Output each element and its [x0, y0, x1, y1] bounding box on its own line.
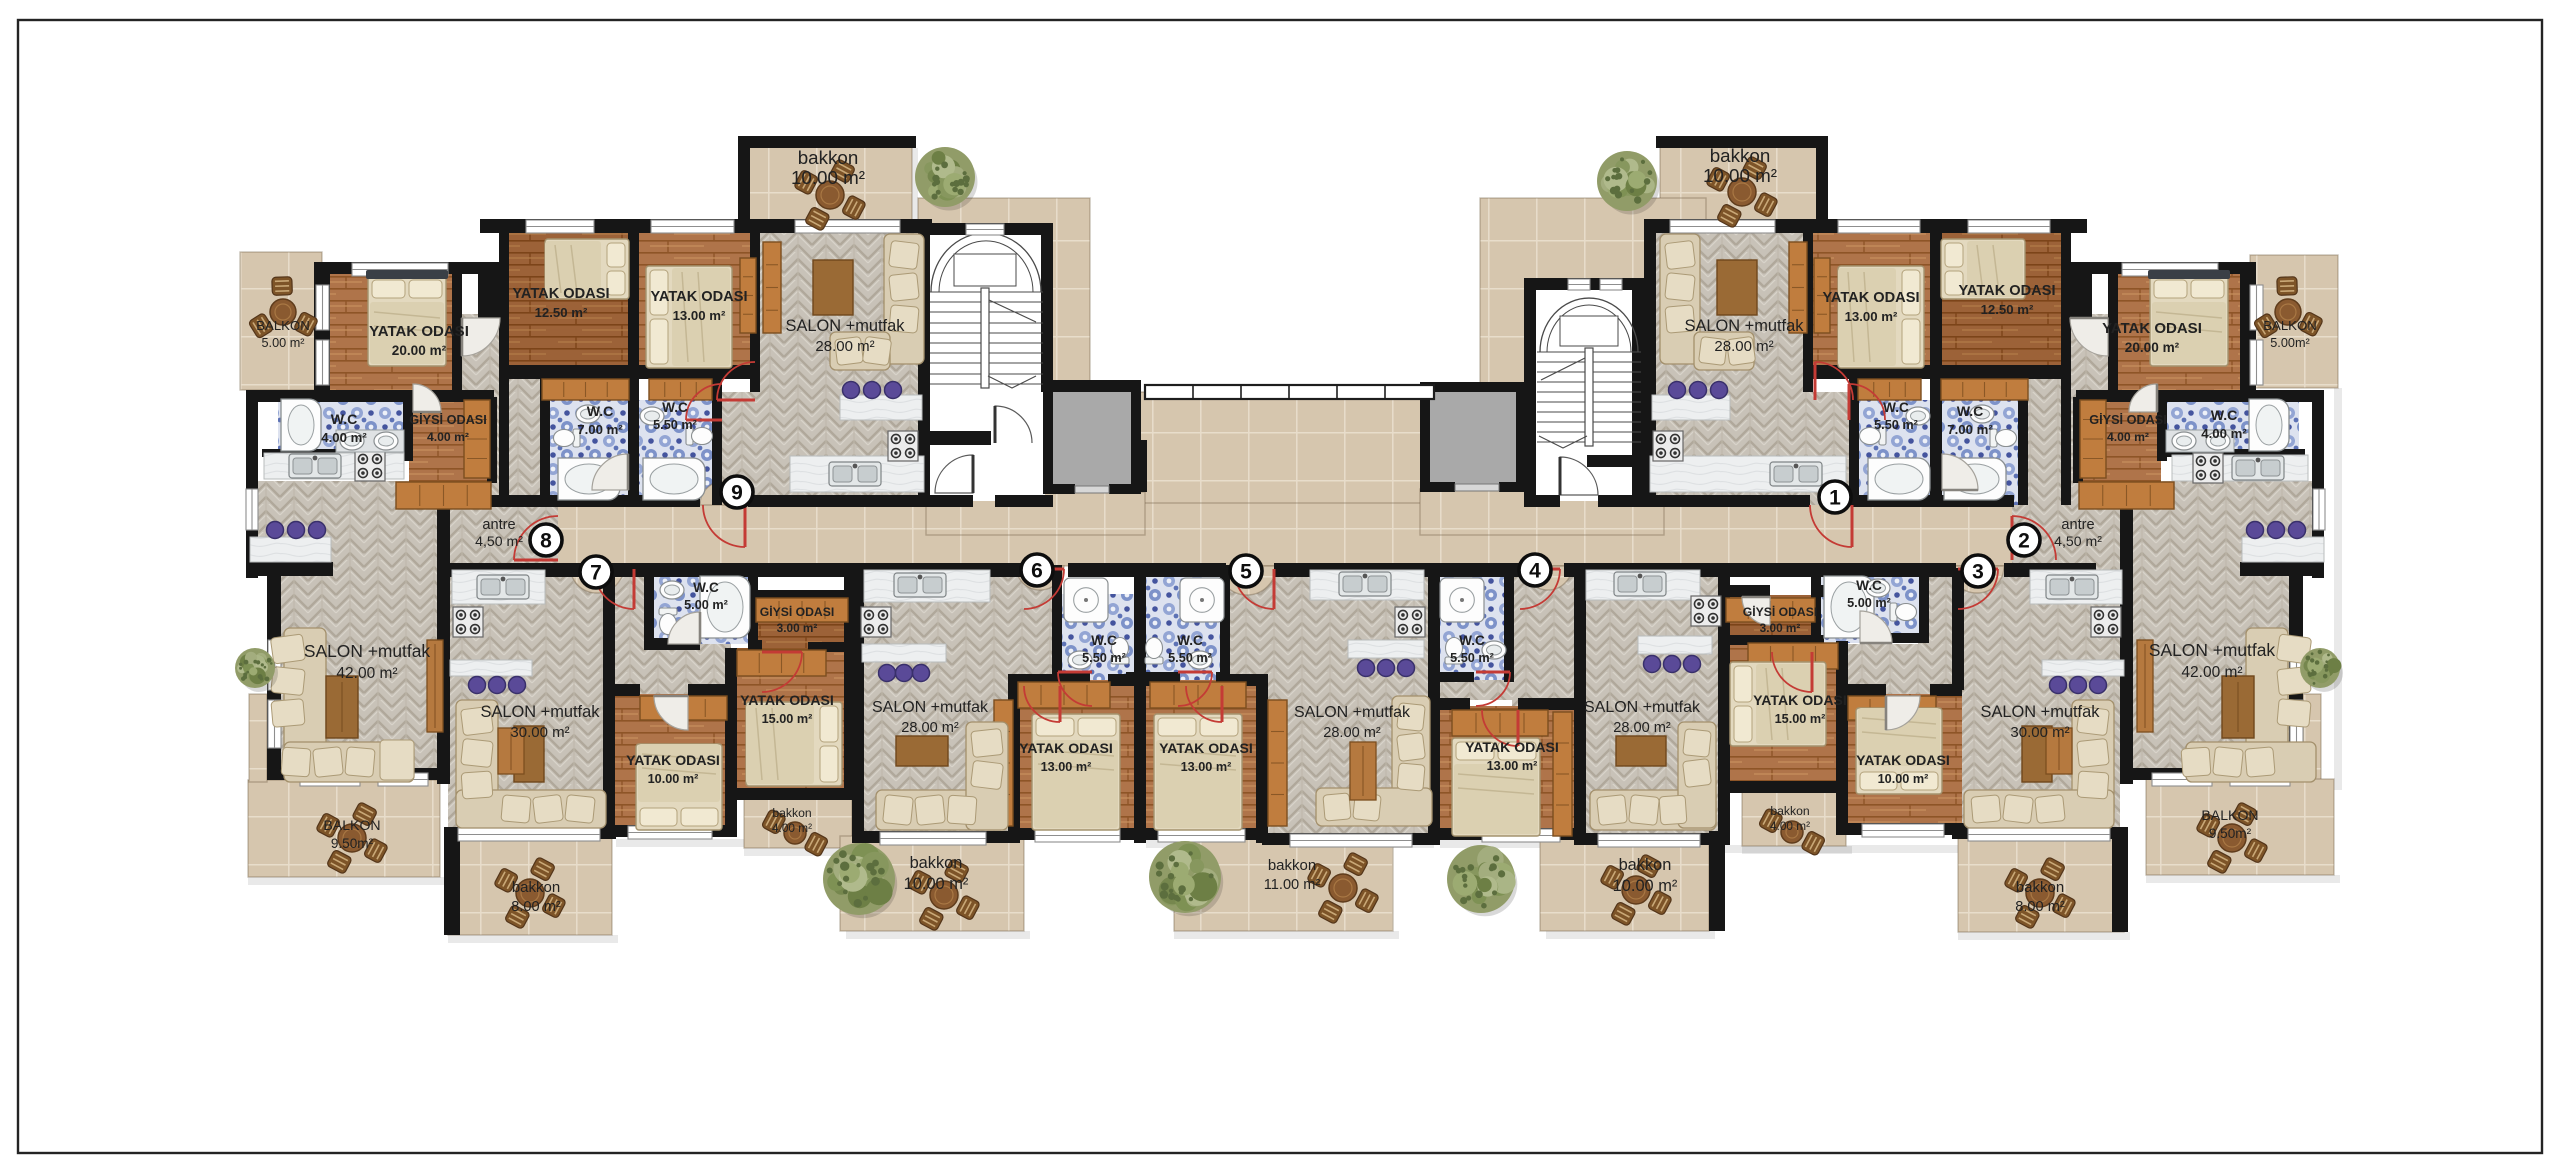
svg-text:bakkon: bakkon: [1619, 856, 1672, 874]
svg-text:4.00 m²: 4.00 m²: [321, 430, 367, 445]
svg-text:13.00 m²: 13.00 m²: [1845, 309, 1898, 324]
svg-text:9: 9: [731, 482, 743, 505]
svg-text:4.00 m²: 4.00 m²: [427, 430, 469, 444]
svg-text:YATAK ODASI: YATAK ODASI: [1465, 739, 1559, 755]
svg-text:W.C: W.C: [587, 403, 614, 419]
svg-text:5.00 m²: 5.00 m²: [684, 598, 728, 612]
svg-text:4.00 m²: 4.00 m²: [772, 821, 812, 835]
svg-text:SALON +mutfak: SALON +mutfak: [1584, 699, 1701, 716]
svg-text:bakkon: bakkon: [1268, 857, 1316, 874]
svg-text:YATAK ODASI: YATAK ODASI: [2102, 320, 2202, 337]
svg-text:30.00 m²: 30.00 m²: [2010, 724, 2069, 741]
svg-text:13.00 m²: 13.00 m²: [1487, 759, 1538, 773]
svg-text:GİYSİ ODASI: GİYSİ ODASI: [409, 412, 487, 427]
svg-text:15.00 m²: 15.00 m²: [1775, 712, 1826, 726]
svg-text:7: 7: [590, 562, 602, 585]
svg-text:YATAK ODASI: YATAK ODASI: [1822, 290, 1919, 306]
svg-text:5.50 m²: 5.50 m²: [653, 418, 697, 432]
svg-text:20.00 m²: 20.00 m²: [2125, 340, 2180, 355]
svg-text:8: 8: [540, 530, 552, 553]
svg-text:GİYSİ ODASI: GİYSİ ODASI: [760, 604, 835, 619]
svg-text:5.50 m²: 5.50 m²: [1082, 651, 1126, 665]
svg-text:3.00 m²: 3.00 m²: [777, 621, 818, 635]
svg-text:2: 2: [2018, 530, 2030, 553]
svg-text:antre: antre: [482, 517, 515, 533]
svg-text:BALKON: BALKON: [2201, 807, 2258, 823]
svg-text:5.00m²: 5.00m²: [2270, 336, 2310, 350]
svg-text:YATAK ODASI: YATAK ODASI: [650, 289, 747, 305]
svg-text:bakkon: bakkon: [2016, 879, 2064, 896]
svg-text:5.50 m²: 5.50 m²: [1168, 651, 1212, 665]
svg-text:W.C: W.C: [2211, 407, 2238, 423]
svg-text:4.00 m²: 4.00 m²: [2107, 430, 2149, 444]
svg-text:42.00 m²: 42.00 m²: [2181, 664, 2242, 681]
svg-text:1: 1: [1829, 487, 1841, 510]
svg-text:bakkon: bakkon: [1710, 145, 1771, 166]
svg-text:BALKON: BALKON: [323, 817, 380, 833]
svg-text:bakkon: bakkon: [772, 806, 811, 820]
svg-text:15.00 m²: 15.00 m²: [762, 712, 813, 726]
svg-text:10.00 m²: 10.00 m²: [1703, 165, 1777, 186]
svg-text:10.00 m²: 10.00 m²: [1878, 772, 1929, 786]
svg-text:SALON +mutfak: SALON +mutfak: [2149, 640, 2275, 660]
svg-text:YATAK ODASI: YATAK ODASI: [512, 286, 609, 302]
svg-text:4,50 m²: 4,50 m²: [2054, 533, 2102, 549]
svg-text:bakkon: bakkon: [798, 147, 859, 168]
svg-text:9.50m²: 9.50m²: [331, 836, 374, 851]
svg-text:8.00 m²: 8.00 m²: [2015, 899, 2065, 915]
svg-text:BALKON: BALKON: [256, 318, 310, 333]
svg-text:28.00 m²: 28.00 m²: [1714, 338, 1773, 355]
svg-text:antre: antre: [2061, 517, 2094, 533]
svg-text:5.50 m²: 5.50 m²: [1450, 651, 1494, 665]
svg-text:42.00 m²: 42.00 m²: [336, 665, 397, 682]
svg-text:3: 3: [1972, 561, 1984, 584]
svg-text:20.00 m²: 20.00 m²: [392, 343, 447, 358]
svg-text:W.C: W.C: [1883, 400, 1909, 415]
svg-text:SALON +mutfak: SALON +mutfak: [1294, 704, 1411, 721]
svg-text:bakkon: bakkon: [1770, 804, 1809, 818]
svg-text:5: 5: [1240, 561, 1252, 584]
svg-text:YATAK ODASI: YATAK ODASI: [1753, 692, 1847, 708]
svg-text:6: 6: [1031, 560, 1043, 583]
svg-text:12.50 m²: 12.50 m²: [1981, 302, 2034, 317]
svg-text:W.C: W.C: [1177, 633, 1203, 648]
svg-text:13.00 m²: 13.00 m²: [673, 308, 726, 323]
svg-text:11.00 m²: 11.00 m²: [1264, 877, 1321, 893]
svg-text:28.00 m²: 28.00 m²: [901, 720, 959, 736]
svg-text:30.00 m²: 30.00 m²: [510, 724, 569, 741]
svg-text:28.00 m²: 28.00 m²: [815, 338, 874, 355]
svg-text:YATAK ODASI: YATAK ODASI: [369, 323, 469, 340]
svg-text:YATAK ODASI: YATAK ODASI: [626, 752, 720, 768]
svg-text:5.50 m²: 5.50 m²: [1874, 418, 1918, 432]
svg-text:W.C: W.C: [1459, 633, 1485, 648]
svg-text:10.00 m²: 10.00 m²: [1613, 877, 1678, 895]
svg-text:YATAK ODASI: YATAK ODASI: [1856, 752, 1950, 768]
svg-text:3.00 m²: 3.00 m²: [1760, 621, 1801, 635]
svg-text:10.00 m²: 10.00 m²: [648, 772, 699, 786]
svg-text:10.00 m²: 10.00 m²: [904, 875, 969, 893]
svg-text:4.00 m²: 4.00 m²: [1770, 819, 1810, 833]
svg-text:W.C: W.C: [1091, 633, 1117, 648]
svg-text:8.00 m²: 8.00 m²: [511, 899, 561, 915]
svg-text:SALON +mutfak: SALON +mutfak: [1685, 317, 1805, 335]
svg-text:YATAK ODASI: YATAK ODASI: [740, 692, 834, 708]
svg-text:12.50 m²: 12.50 m²: [535, 305, 588, 320]
svg-text:7.00 m²: 7.00 m²: [1947, 422, 1993, 437]
svg-text:9.50m²: 9.50m²: [2209, 826, 2252, 841]
svg-text:BALKON: BALKON: [2263, 318, 2317, 333]
svg-text:5.00 m²: 5.00 m²: [261, 336, 304, 350]
svg-text:SALON +mutfak: SALON +mutfak: [304, 641, 430, 661]
svg-text:13.00 m²: 13.00 m²: [1181, 760, 1232, 774]
svg-text:W.C: W.C: [662, 400, 688, 415]
svg-text:10.00 m²: 10.00 m²: [791, 167, 865, 188]
svg-text:7.00 m²: 7.00 m²: [577, 422, 623, 437]
svg-text:SALON +mutfak: SALON +mutfak: [786, 317, 906, 335]
svg-text:YATAK ODASI: YATAK ODASI: [1958, 283, 2055, 299]
svg-text:YATAK ODASI: YATAK ODASI: [1019, 740, 1113, 756]
svg-text:4: 4: [1529, 560, 1541, 583]
svg-text:W.C: W.C: [1957, 403, 1984, 419]
svg-text:bakkon: bakkon: [910, 854, 963, 872]
svg-text:YATAK ODASI: YATAK ODASI: [1159, 740, 1253, 756]
svg-text:W.C: W.C: [1856, 578, 1882, 593]
svg-text:28.00 m²: 28.00 m²: [1323, 725, 1381, 741]
svg-text:SALON +mutfak: SALON +mutfak: [1981, 703, 2101, 721]
svg-text:bakkon: bakkon: [512, 879, 560, 896]
svg-text:5.00 m²: 5.00 m²: [1847, 596, 1891, 610]
svg-text:4.00 m²: 4.00 m²: [2201, 426, 2247, 441]
svg-text:GİYSİ ODASI: GİYSİ ODASI: [1743, 604, 1818, 619]
svg-text:4,50 m²: 4,50 m²: [475, 533, 523, 549]
svg-text:W.C: W.C: [331, 411, 358, 427]
svg-text:SALON +mutfak: SALON +mutfak: [872, 699, 989, 716]
svg-text:13.00 m²: 13.00 m²: [1041, 760, 1092, 774]
svg-text:28.00 m²: 28.00 m²: [1613, 720, 1671, 736]
svg-text:W.C: W.C: [693, 580, 719, 595]
svg-text:SALON +mutfak: SALON +mutfak: [481, 703, 601, 721]
svg-text:GİYSİ ODASI: GİYSİ ODASI: [2089, 412, 2167, 427]
